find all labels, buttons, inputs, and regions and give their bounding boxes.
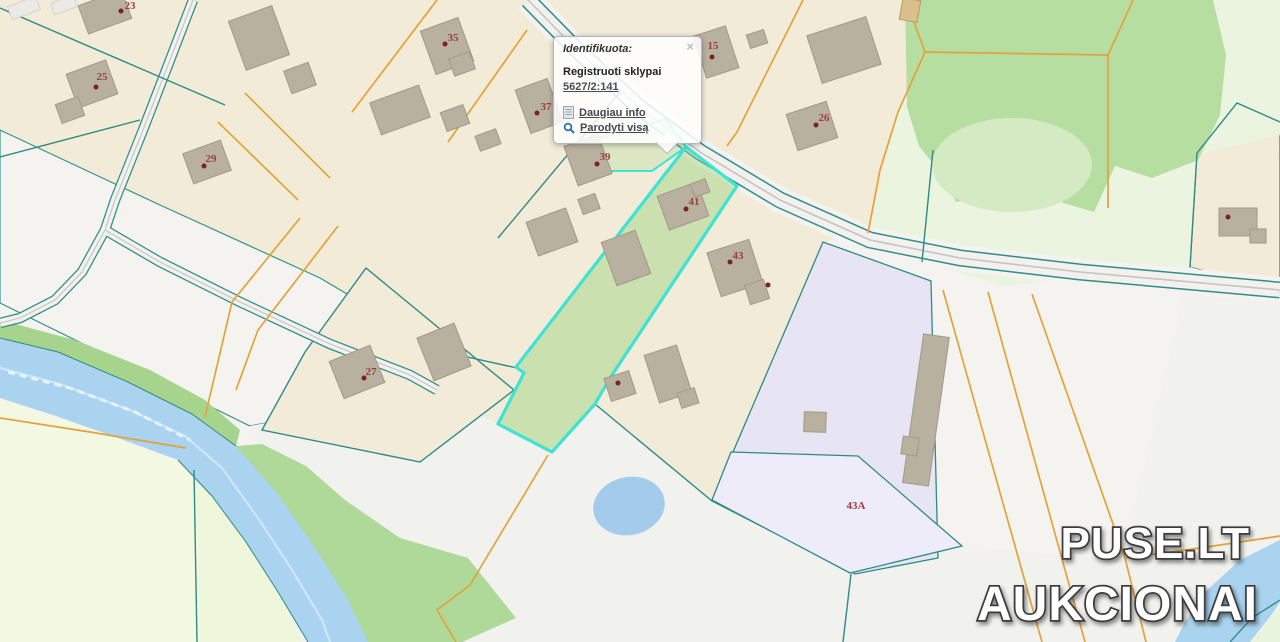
- house-marker-dot: [94, 85, 99, 90]
- house-marker-dot: [443, 42, 448, 47]
- house-marker-dot: [710, 55, 715, 60]
- house-marker-dot: [684, 207, 689, 212]
- watermark-line2: AUKCIONAI: [977, 578, 1258, 631]
- more-info-link[interactable]: Daugiau info: [579, 107, 646, 119]
- parcel-id-link[interactable]: 5627/2:141: [563, 81, 619, 93]
- building: [804, 412, 827, 433]
- house-marker-dot: [595, 162, 600, 167]
- house-marker-dot: [362, 376, 367, 381]
- house-marker-dot: [766, 283, 771, 288]
- identify-popup: × Identifikuota: Registruoti sklypai 562…: [553, 36, 702, 144]
- show-all-link[interactable]: Parodyti visą: [580, 122, 648, 134]
- house-marker-dot: [616, 381, 621, 386]
- building: [899, 0, 921, 22]
- result-layer-name: Registruoti sklypai: [563, 66, 692, 78]
- house-marker-dot: [814, 123, 819, 128]
- house-marker-dot: [535, 111, 540, 116]
- watermark-line1: PUSE.LT: [1060, 519, 1250, 568]
- popup-title: Identifikuota:: [554, 37, 701, 57]
- house-marker-dot: [202, 164, 207, 169]
- document-icon: [563, 106, 574, 119]
- green-light-patch: [932, 118, 1092, 212]
- house-marker-dot: [119, 9, 124, 14]
- magnifier-icon: [563, 122, 575, 134]
- building: [901, 436, 919, 456]
- map-viewport: PUSE.LT AUKCIONAI 2335253729152639414327…: [0, 0, 1280, 642]
- house-marker-dot: [728, 260, 733, 265]
- house-marker-dot: [1226, 215, 1231, 220]
- building: [1250, 229, 1266, 243]
- close-icon[interactable]: ×: [686, 40, 694, 53]
